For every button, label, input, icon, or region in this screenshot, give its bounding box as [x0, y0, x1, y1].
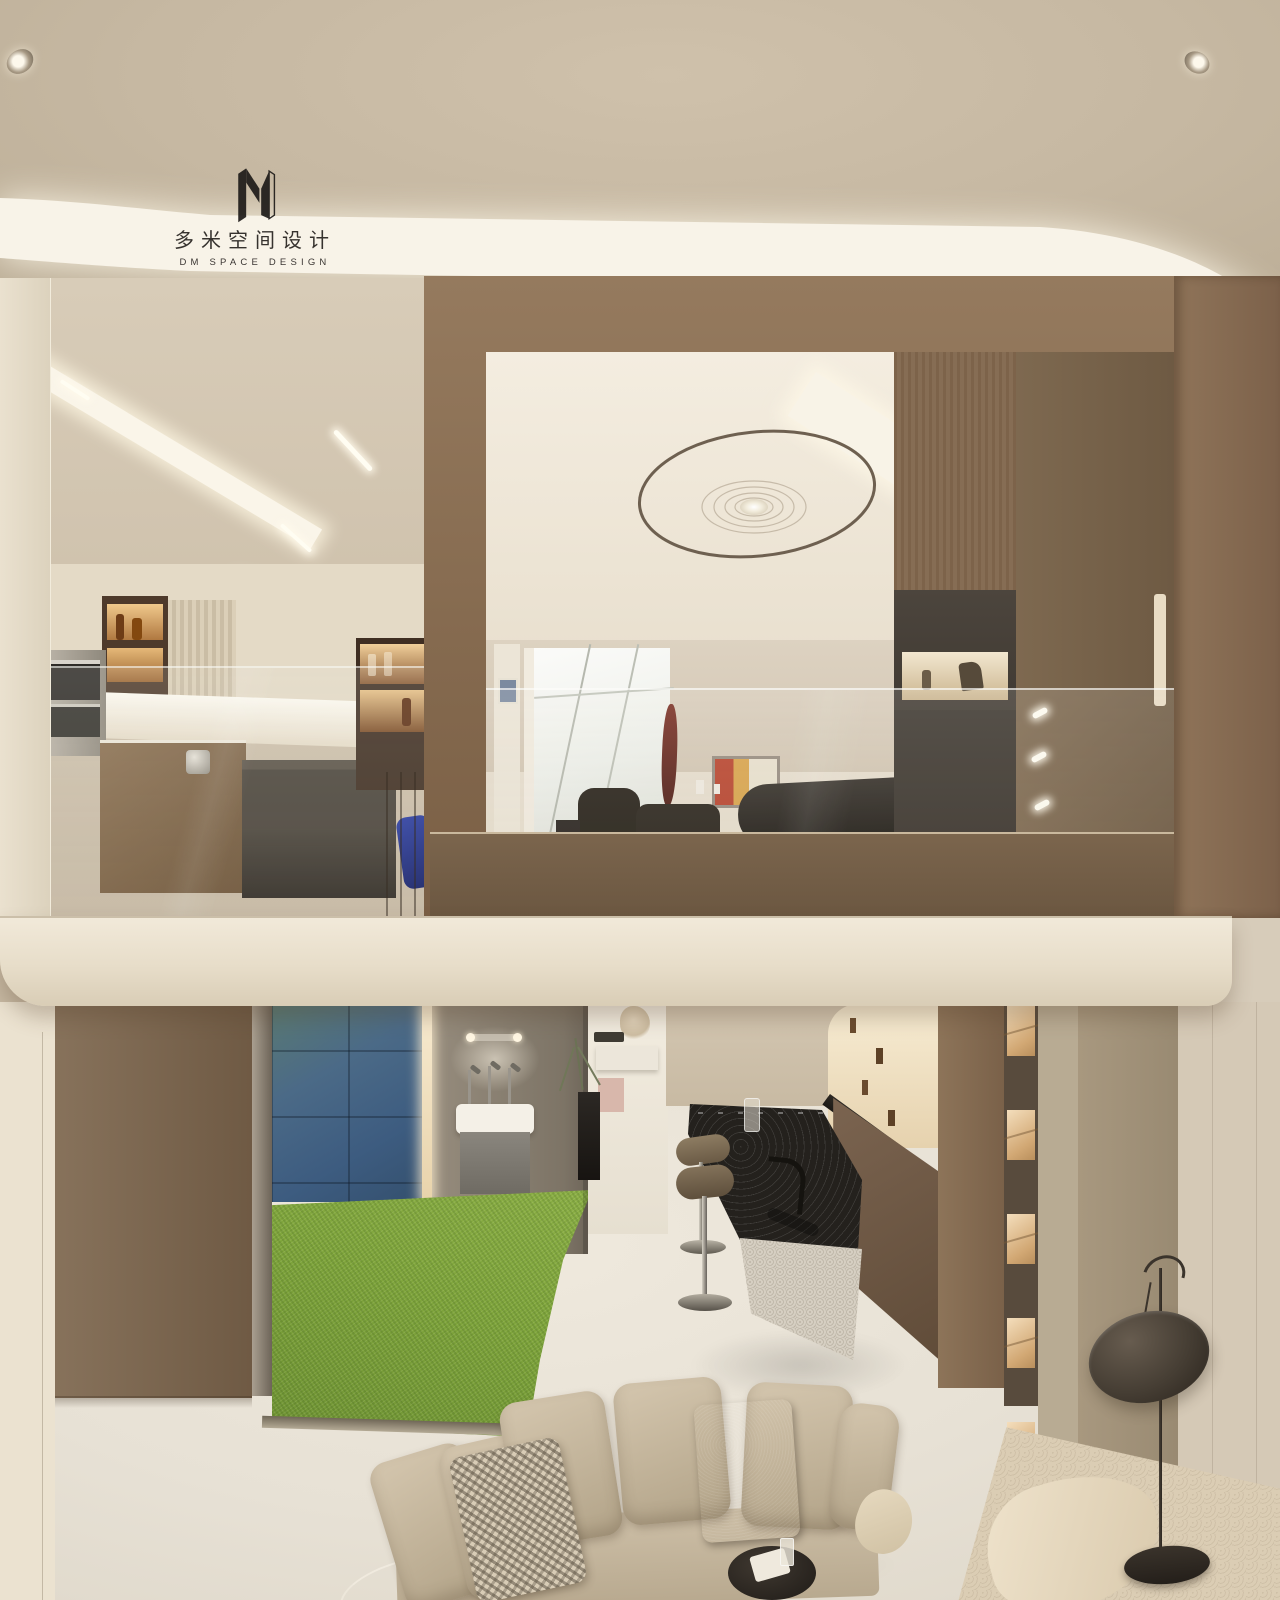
console-table-dark: [578, 1092, 600, 1180]
shelf-niche: [1007, 1214, 1035, 1264]
shelf-niche: [1007, 1318, 1035, 1368]
glass-balustrade: [486, 688, 1174, 838]
track-light-icon: [333, 429, 373, 472]
dark-knit-pillow: [693, 1399, 800, 1544]
sculpture-silhouette: [958, 661, 984, 692]
wood-parapet: [430, 832, 1174, 924]
mezzanine-floor-slab: [0, 916, 1232, 1006]
wall-light-seam: [422, 1002, 432, 1202]
panel-seam: [42, 1032, 43, 1600]
right-wall-strip-a: [1038, 1002, 1078, 1504]
wall-floor-shadow: [55, 1396, 252, 1408]
brand-name-chinese: 多米空间设计: [174, 224, 336, 253]
right-wall-strip-c: [1178, 1002, 1280, 1504]
golf-club: [488, 1066, 491, 1108]
golf-caddy-top: [456, 1104, 534, 1134]
left-outer-wall: [0, 278, 51, 920]
brand-watermark: 多米空间设计 DM SPACE DESIGN: [160, 164, 350, 284]
white-console: [596, 1046, 658, 1070]
wall-vent: [594, 1032, 624, 1042]
bottle-silhouette: [888, 1110, 895, 1126]
tile-grid: [272, 1002, 424, 1202]
bottle-silhouette: [862, 1080, 868, 1095]
tall-wood-cabinet: [938, 1002, 1006, 1388]
lit-shelf-column: [1004, 1002, 1038, 1406]
pendant-dry-flowers: [620, 1006, 650, 1040]
bottle-silhouette: [850, 1018, 856, 1033]
sconce-end-glow: [466, 1033, 475, 1042]
linear-wall-sconce-icon: [470, 1034, 518, 1041]
lower-left-column: [0, 1002, 55, 1600]
bottle-silhouette: [876, 1048, 883, 1064]
brand-name-english: DM SPACE DESIGN: [180, 257, 331, 268]
golf-club: [468, 1070, 471, 1108]
golf-club: [508, 1068, 511, 1108]
glass-cup: [744, 1098, 760, 1132]
mezzanine-kitchen: [0, 278, 432, 920]
bottle-silhouette: [116, 614, 124, 640]
vase-silhouette: [922, 670, 931, 690]
door-jamb: [252, 1002, 272, 1396]
right-wood-column: [1174, 276, 1280, 918]
sconce-end-glow: [513, 1033, 522, 1042]
bar-stool-base: [678, 1294, 732, 1311]
lower-wood-wall: [55, 1002, 252, 1398]
golf-screen-wall: [272, 1002, 424, 1202]
railing-post: [414, 772, 416, 920]
dm-logo-mark-icon: [226, 164, 284, 224]
golf-caddy-body: [460, 1132, 530, 1194]
railing-post: [400, 772, 402, 920]
shelf-niche: [1007, 1006, 1035, 1056]
glass-railing: [38, 666, 432, 920]
ring-ceiling-light: [632, 419, 882, 569]
bar-stool-post: [702, 1196, 707, 1302]
bottle-silhouette: [132, 618, 142, 640]
interior-rendering: 多米空间设计 DM SPACE DESIGN: [0, 0, 1280, 1600]
study-interior: [486, 352, 1174, 838]
shelf-niche: [1007, 1110, 1035, 1160]
railing-post: [386, 772, 388, 920]
pink-box: [598, 1078, 624, 1112]
glass-candle-holder: [780, 1538, 794, 1566]
